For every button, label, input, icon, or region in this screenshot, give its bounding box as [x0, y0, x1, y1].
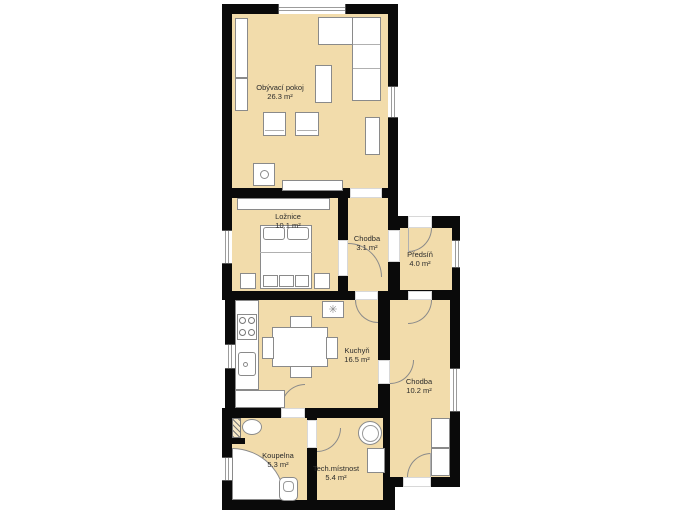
hallway-wardrobe — [431, 418, 450, 448]
window — [225, 344, 235, 369]
shelf — [235, 18, 248, 78]
armchair — [295, 112, 319, 136]
ceiling-fan-icon: ✳ — [322, 301, 344, 318]
flue-shaft — [232, 418, 241, 438]
wardrobe — [237, 198, 330, 210]
nightstand — [314, 273, 330, 289]
stove-burner — [248, 329, 255, 336]
kitchen-counter-low — [235, 390, 285, 408]
sofa-cushion-line — [353, 44, 380, 45]
room-label-bedroom: Ložnice 10.1 m² — [238, 213, 338, 230]
bed-foot-cushion — [295, 275, 309, 287]
window — [278, 4, 346, 14]
faucet — [243, 362, 248, 367]
bed-foot-cushion — [279, 275, 294, 287]
door-opening-entry-hall — [408, 291, 432, 300]
door-opening-living-hall — [350, 188, 382, 198]
bathroom-sink — [242, 419, 262, 435]
door-opening-exit — [403, 477, 431, 487]
nightstand — [240, 273, 256, 289]
sideboard — [282, 180, 343, 191]
stove-burner — [239, 329, 246, 336]
sofa-chaise — [318, 17, 353, 45]
door-opening-bath-tech — [307, 420, 317, 448]
dining-chair — [290, 316, 312, 328]
armchair-back-line — [265, 130, 284, 131]
room-label-hallway-long: Chodba 10.2 m² — [369, 378, 469, 395]
window — [222, 230, 232, 264]
door-opening-hall-kitchen — [355, 291, 378, 300]
bed-foot-cushion — [263, 275, 278, 287]
room-label-hallway-small: Chodba 3.1 m² — [317, 235, 417, 252]
window — [388, 86, 398, 118]
door-opening-entrance — [408, 216, 432, 228]
lamp — [260, 170, 269, 179]
room-area: 26.3 m² — [230, 93, 330, 102]
room-area: 16.5 m² — [307, 356, 407, 365]
cabinet — [365, 117, 380, 155]
dining-chair — [262, 337, 274, 359]
hallway-wardrobe — [431, 448, 450, 476]
room-label-tech: Tech.místnost 5.4 m² — [286, 465, 386, 482]
stove-burner — [239, 317, 246, 324]
stove-burner — [248, 317, 255, 324]
blanket-line — [260, 252, 312, 253]
wall-stub — [232, 438, 245, 444]
door-opening-kitchen-bath — [281, 408, 305, 418]
room-label-living: Obývací pokoj 26.3 m² — [230, 84, 330, 101]
sofa-cushion-line — [353, 68, 380, 69]
armchair — [263, 112, 286, 136]
washing-machine — [358, 421, 382, 445]
armchair-back-line — [297, 130, 317, 131]
sofa — [352, 17, 381, 101]
floor-plan: ✳ Obývací pokoj 26.3 m² Ložnice 10.1 m² … — [0, 0, 686, 514]
room-area: 4.0 m² — [370, 260, 470, 269]
room-area: 10.2 m² — [369, 387, 469, 396]
room-area: 5.4 m² — [286, 474, 386, 483]
dining-chair — [290, 366, 312, 378]
room-area: 10.1 m² — [238, 222, 338, 231]
room-label-kitchen: Kuchyň 16.5 m² — [307, 347, 407, 364]
room-label-entry: Předsíň 4.0 m² — [370, 251, 470, 268]
